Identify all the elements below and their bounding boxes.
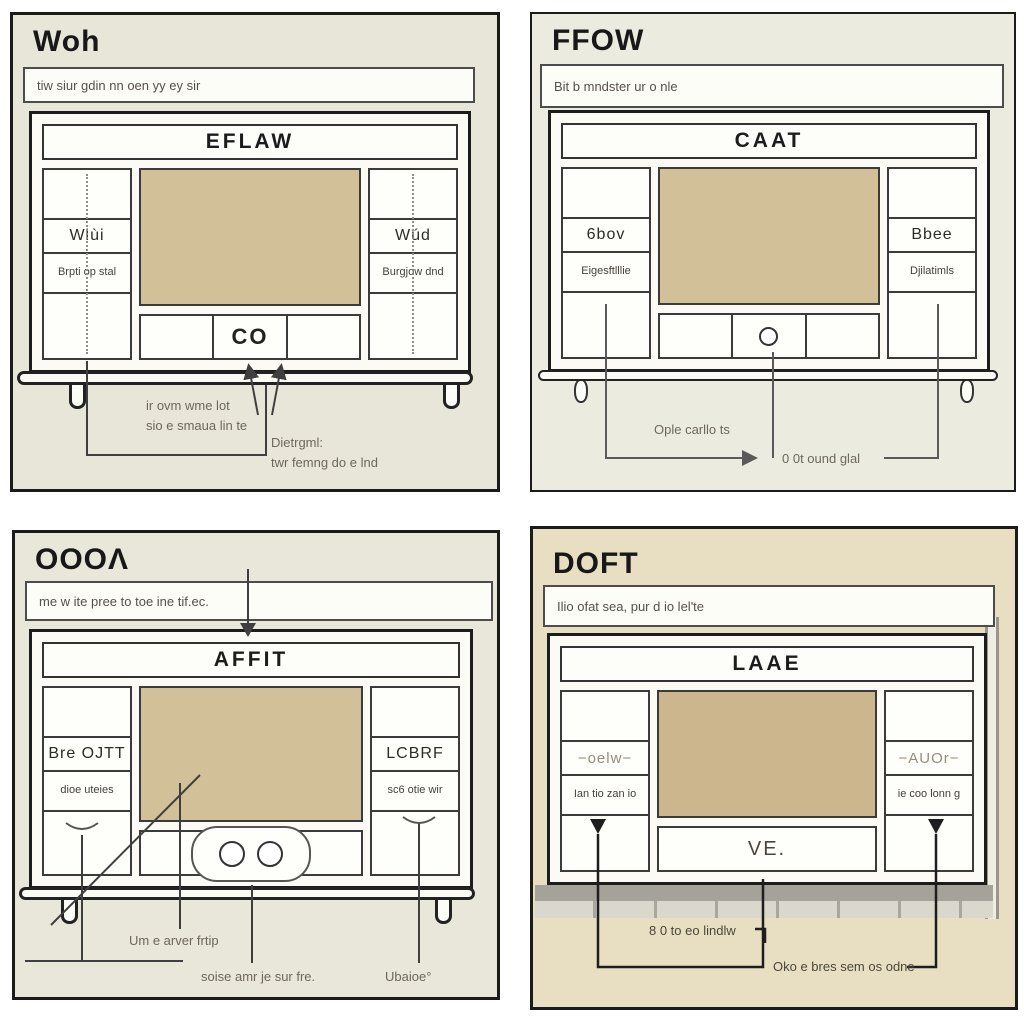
right-bottom-cell <box>887 291 977 359</box>
right-mid-cell: Bbee <box>887 217 977 253</box>
drawer-row <box>139 830 363 876</box>
right-top-cell <box>368 168 458 220</box>
center-column: VE. <box>657 690 877 872</box>
left-mid-cell: −oelw− <box>560 740 650 776</box>
annotation-2-line2: twr femng do e lnd <box>271 453 378 473</box>
floor-strip <box>535 885 993 901</box>
drawer-right <box>286 314 361 360</box>
subtitle-text: me w ite pree to toe ine tif.ec. <box>39 594 209 609</box>
left-mid-label: Bre OJTT <box>48 745 125 763</box>
cabinet: CAAT 6bov Eigesftlllie <box>548 110 990 372</box>
panel-title: DOFT <box>553 547 639 581</box>
cabinet-body: Wlùi Brpti op stal CO <box>42 168 458 360</box>
cabinet-rail <box>17 371 473 385</box>
right-mid-cell: LCBRF <box>370 736 460 772</box>
drawer-label: CO <box>231 324 268 350</box>
left-low-cell: dioe uteies <box>42 770 132 812</box>
wall-pillar <box>985 617 999 919</box>
left-mid-cell: Wlùi <box>42 218 132 254</box>
left-column: Bre OJTT dioe uteies <box>42 686 132 876</box>
drawer-left <box>658 313 733 359</box>
center-column <box>139 686 363 876</box>
left-column: −oelw− Ian tio zan io <box>560 690 650 872</box>
cabinet: EFLAW Wlùi Brpti op stal <box>29 111 471 373</box>
subtitle-text: Bit b mndster ur o nle <box>554 79 678 94</box>
cabinet-foot-right <box>960 379 974 403</box>
right-bottom-cell <box>368 292 458 360</box>
cabinet-body: 6bov Eigesftlllie <box>561 167 977 359</box>
drawer-center: VE. <box>657 826 877 872</box>
annotation-2: 0 0t ound glal <box>782 449 860 469</box>
cabinet-header-label: EFLAW <box>206 130 295 154</box>
right-low-cell: Djilatimls <box>887 251 977 293</box>
drawer-center: CO <box>212 314 287 360</box>
cabinet-rail <box>19 887 475 900</box>
left-mid-cell: Bre OJTT <box>42 736 132 772</box>
left-top-cell <box>560 690 650 742</box>
cabinet-leg-right <box>435 898 452 924</box>
left-top-cell <box>561 167 651 219</box>
right-mid-label: Bbee <box>911 226 952 244</box>
panel-bottom-left: OOOΛ me w ite pree to toe ine tif.ec. AF… <box>12 530 500 1000</box>
right-low-cell: ie coo lonn g <box>884 774 974 816</box>
left-column: 6bov Eigesftlllie <box>561 167 651 359</box>
cabinet-leg-left <box>69 383 86 409</box>
cabinet-rail <box>538 370 998 381</box>
right-column: Wúd Burgjow dnd <box>368 168 458 360</box>
right-mid-label: Wúd <box>395 227 431 245</box>
drawer-row <box>658 313 880 359</box>
subtitle-bar: Ilio ofat sea, pur d io lel'te <box>543 585 995 627</box>
cabinet-header: EFLAW <box>42 124 458 160</box>
right-column: Bbee Djilatimls <box>887 167 977 359</box>
right-top-cell <box>884 690 974 742</box>
left-mid-label: −oelw− <box>578 750 632 767</box>
handle-pill <box>191 826 311 882</box>
drawer-center <box>731 313 806 359</box>
subtitle-text: Ilio ofat sea, pur d io lel'te <box>557 599 704 614</box>
left-bottom-cell <box>561 291 651 359</box>
right-low-label: Burgjow dnd <box>382 266 443 279</box>
annotation-2-text: soise amr je sur fre. <box>201 967 315 987</box>
annotation-3-text: Ubaioe° <box>385 967 431 987</box>
left-low-label: Eigesftlllie <box>581 265 631 278</box>
cabinet-header: AFFIT <box>42 642 460 678</box>
annotation-1: 8 0 to eo lindlw <box>649 921 736 941</box>
left-low-cell: Ian tio zan io <box>560 774 650 816</box>
cabinet-leg-left <box>61 898 78 924</box>
cabinet-body: −oelw− Ian tio zan io VE. <box>560 690 974 872</box>
tv-screen <box>658 167 880 305</box>
left-low-cell: Eigesftlllie <box>561 251 651 293</box>
left-bottom-cell <box>560 814 650 872</box>
drawer-label: VE. <box>748 838 786 861</box>
tv-screen <box>139 168 361 306</box>
panel-title: OOOΛ <box>35 543 129 577</box>
annotation-2: Oko e bres sem os odne <box>773 957 915 977</box>
panel-top-right: FFOW Bit b mndster ur o nle CAAT 6bov Ei… <box>530 12 1016 492</box>
knob-icon <box>257 841 283 867</box>
annotation-1-text: Um e arver frtip <box>129 931 219 951</box>
annotation-2-text: 0 0t ound glal <box>782 449 860 469</box>
right-low-label: sc6 otie wir <box>387 784 442 797</box>
subtitle-bar: tiw siur gdin nn oen yy ey sir <box>23 67 475 103</box>
annotation-1: ir ovm wme lot sio e smaua lin te <box>146 396 247 435</box>
subtitle-bar: me w ite pree to toe ine tif.ec. <box>25 581 493 621</box>
cabinet-header-label: AFFIT <box>214 648 288 672</box>
cabinet: LAAE −oelw− Ian tio zan io <box>547 633 987 885</box>
right-top-cell <box>887 167 977 219</box>
annotation-1-text: Ople carllo ts <box>654 420 730 440</box>
annotation-1: Ople carllo ts <box>654 420 730 440</box>
cabinet: AFFIT Bre OJTT dioe uteies <box>29 629 473 889</box>
annotation-1-line2: sio e smaua lin te <box>146 416 247 436</box>
right-mid-label: −AUOr− <box>898 750 959 767</box>
right-mid-label: LCBRF <box>386 745 443 763</box>
cabinet-header: LAAE <box>560 646 974 682</box>
tv-screen <box>139 686 363 822</box>
diagram-grid: Woh tiw siur gdin nn oen yy ey sir EFLAW… <box>0 0 1024 1024</box>
subtitle-text: tiw siur gdin nn oen yy ey sir <box>37 78 200 93</box>
left-mid-label: 6bov <box>587 226 626 244</box>
annotation-2-line1: Dietrgml: <box>271 433 378 453</box>
left-bottom-cell <box>42 810 132 876</box>
right-low-cell: sc6 otie wir <box>370 770 460 812</box>
drawer-row: CO <box>139 314 361 360</box>
panel-top-left: Woh tiw siur gdin nn oen yy ey sir EFLAW… <box>10 12 500 492</box>
annotation-1-line1: ir ovm wme lot <box>146 396 247 416</box>
right-top-cell <box>370 686 460 738</box>
right-column: −AUOr− ie coo lonn g <box>884 690 974 872</box>
annotation-2: soise amr je sur fre. <box>201 967 315 987</box>
drawer-right <box>805 313 880 359</box>
left-low-label: dioe uteies <box>60 784 113 797</box>
drawer-center <box>213 830 289 876</box>
left-low-label: Brpti op stal <box>58 266 116 279</box>
center-column <box>658 167 880 359</box>
annotation-3: Ubaioe° <box>385 967 431 987</box>
left-low-cell: Brpti op stal <box>42 252 132 294</box>
right-mid-cell: −AUOr− <box>884 740 974 776</box>
left-low-label: Ian tio zan io <box>574 788 636 801</box>
center-column: CO <box>139 168 361 360</box>
right-mid-cell: Wúd <box>368 218 458 254</box>
right-low-cell: Burgjow dnd <box>368 252 458 294</box>
right-bottom-cell <box>370 810 460 876</box>
cabinet-header-label: LAAE <box>732 652 801 676</box>
right-bottom-cell <box>884 814 974 872</box>
left-mid-cell: 6bov <box>561 217 651 253</box>
knob-icon <box>759 327 778 346</box>
annotation-2-text: Oko e bres sem os odne <box>773 957 915 977</box>
panel-title: FFOW <box>552 24 644 58</box>
panel-title: Woh <box>33 25 100 59</box>
right-low-label: Djilatimls <box>910 265 954 278</box>
left-mid-label: Wlùi <box>69 227 104 245</box>
left-bottom-cell <box>42 292 132 360</box>
panel-bottom-right: DOFT Ilio ofat sea, pur d io lel'te LAAE… <box>530 526 1018 1010</box>
cabinet-foot-left <box>574 379 588 403</box>
left-column: Wlùi Brpti op stal <box>42 168 132 360</box>
cabinet-body: Bre OJTT dioe uteies <box>42 686 460 876</box>
drawer-left <box>139 314 214 360</box>
knob-icon <box>219 841 245 867</box>
annotation-1-text: 8 0 to eo lindlw <box>649 921 736 941</box>
cabinet-header: CAAT <box>561 123 977 159</box>
right-column: LCBRF sc6 otie wir <box>370 686 460 876</box>
left-top-cell <box>42 686 132 738</box>
subtitle-bar: Bit b mndster ur o nle <box>540 64 1004 108</box>
baseboard-strip <box>535 901 993 918</box>
tv-screen <box>657 690 877 818</box>
cabinet-leg-right <box>443 383 460 409</box>
right-low-label: ie coo lonn g <box>898 788 960 801</box>
left-top-cell <box>42 168 132 220</box>
drawer-row: VE. <box>657 826 877 872</box>
annotation-2: Dietrgml: twr femng do e lnd <box>271 433 378 472</box>
annotation-1: Um e arver frtip <box>129 931 219 951</box>
cabinet-header-label: CAAT <box>735 129 804 153</box>
